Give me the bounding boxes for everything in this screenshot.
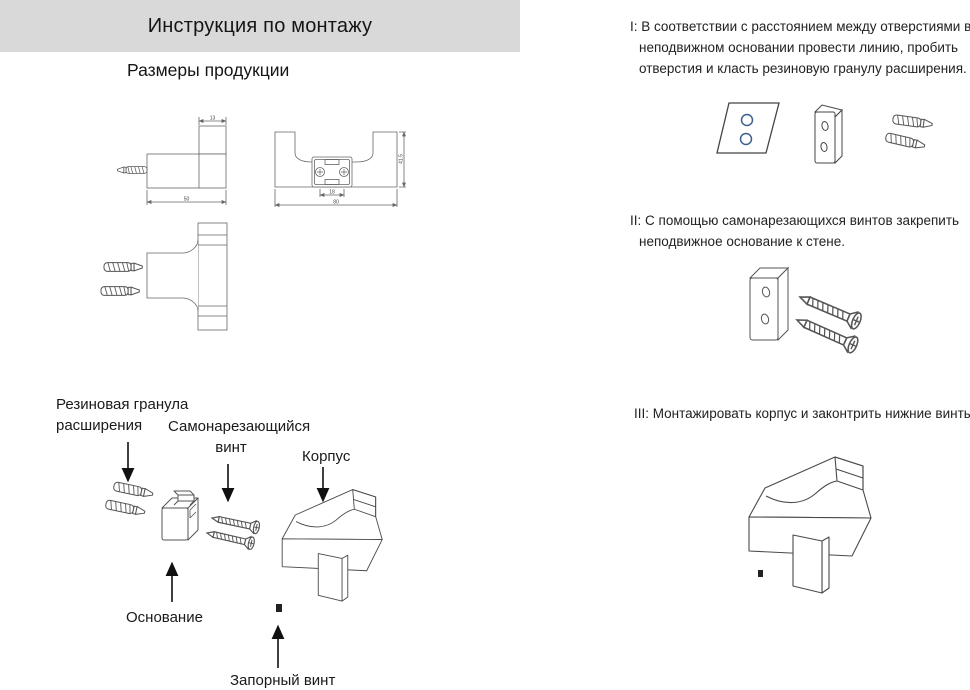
page-title: Инструкция по монтажу	[148, 15, 373, 38]
dim-side-hook-width: 13	[210, 116, 216, 122]
base-part	[162, 491, 198, 540]
instruction-sheet: Инструкция по монтажу Размеры продукции …	[0, 0, 970, 690]
tapping-screw-part	[206, 527, 256, 550]
base-plate-3d	[815, 105, 842, 163]
drill-hole	[742, 115, 753, 126]
label-tapping-screw: Самонарезающийся винт	[168, 416, 294, 458]
top-view-drawing	[101, 223, 227, 330]
step2-instruction: II: С помощью самонарезающихся винтов за…	[630, 210, 970, 252]
dimension-drawings: 13 50 41.5 18	[0, 95, 620, 385]
step3-illustration	[700, 438, 970, 638]
dim-front-width: 80	[333, 200, 339, 206]
step1-instruction: I: В соответствии с расстоянием между от…	[630, 16, 970, 79]
dim-front-hole-spacing: 18	[329, 190, 335, 196]
side-view-drawing: 13 50	[117, 116, 226, 206]
tapping-screw-part	[211, 512, 261, 534]
lock-screw-part	[276, 604, 282, 612]
base-plate-3d	[750, 268, 788, 340]
front-view-drawing: 41.5 18 80	[275, 132, 406, 207]
assembled-hook	[749, 457, 871, 593]
label-lock-screw: Запорный винт	[230, 670, 335, 690]
label-hook-body: Корпус	[302, 446, 350, 467]
wall-plug-part	[105, 500, 146, 517]
section-subtitle: Размеры продукции	[127, 60, 289, 81]
wall-template	[717, 103, 779, 153]
label-base: Основание	[126, 607, 203, 628]
dim-side-length: 50	[184, 197, 190, 203]
header-bar: Инструкция по монтажу	[0, 0, 520, 52]
step2-illustration	[700, 253, 920, 388]
wall-plug-part	[113, 482, 154, 499]
step1-illustration	[660, 95, 960, 200]
drill-hole	[741, 134, 752, 145]
step3-instruction: III: Монтажировать корпус и законтрить н…	[634, 403, 970, 424]
dim-front-height: 41.5	[399, 154, 405, 164]
lock-screw-part	[758, 570, 763, 577]
hook-body-part	[282, 490, 382, 602]
